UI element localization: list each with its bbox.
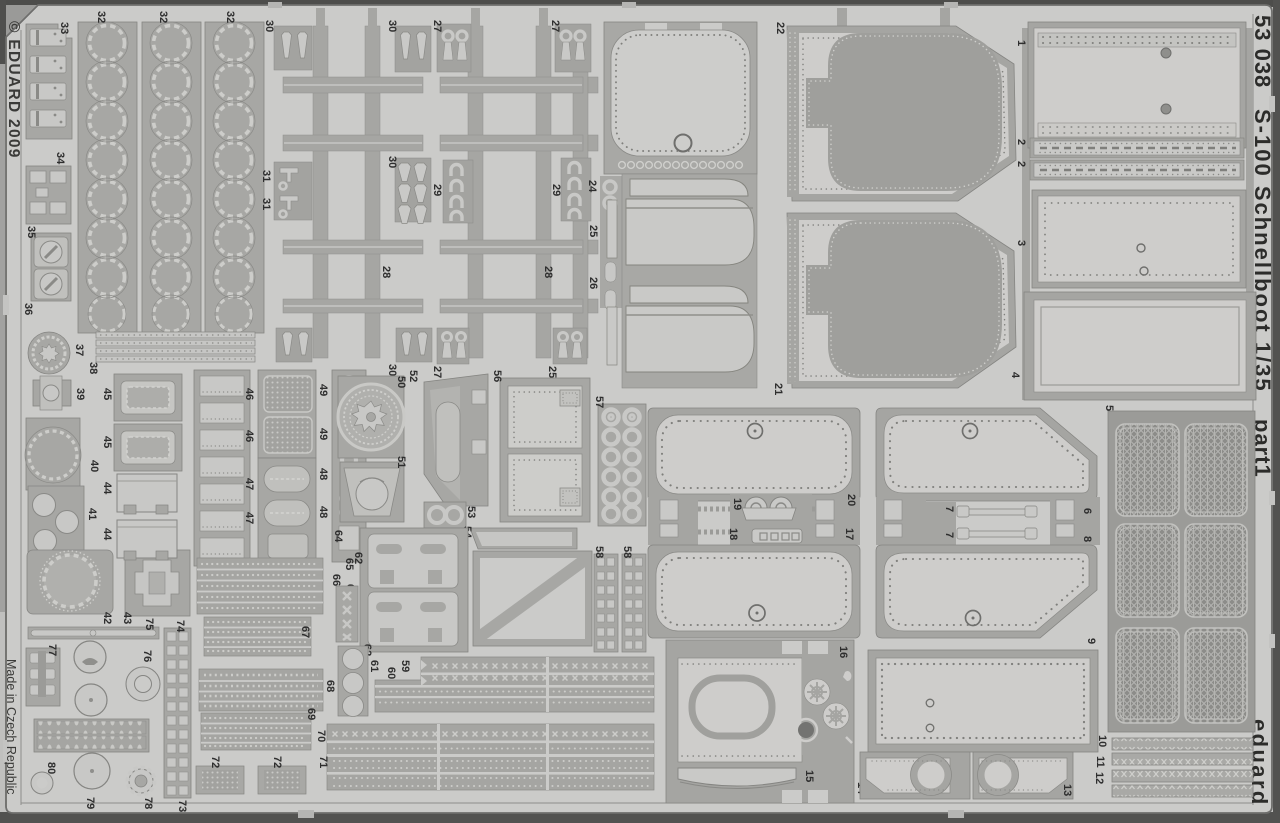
svg-text:53 038: 53 038 xyxy=(1250,15,1275,88)
svg-text:68: 68 xyxy=(324,680,336,692)
svg-text:58: 58 xyxy=(593,546,605,558)
svg-text:27: 27 xyxy=(431,20,443,32)
svg-text:45: 45 xyxy=(101,388,113,400)
svg-text:64: 64 xyxy=(332,530,344,543)
svg-text:2: 2 xyxy=(1015,139,1027,145)
svg-text:8: 8 xyxy=(1081,536,1093,542)
svg-text:7: 7 xyxy=(943,506,955,512)
svg-text:32: 32 xyxy=(157,11,169,23)
svg-text:7: 7 xyxy=(943,532,955,538)
svg-text:57: 57 xyxy=(593,396,605,408)
svg-text:74: 74 xyxy=(174,620,186,633)
svg-text:44: 44 xyxy=(101,528,113,541)
svg-text:6: 6 xyxy=(1081,508,1093,514)
svg-text:21: 21 xyxy=(772,383,784,395)
svg-text:80: 80 xyxy=(45,762,57,774)
svg-text:Made in Czech Republic: Made in Czech Republic xyxy=(4,659,18,795)
svg-text:12: 12 xyxy=(1093,772,1105,784)
svg-text:77: 77 xyxy=(46,644,58,656)
svg-text:66: 66 xyxy=(330,574,342,586)
svg-text:36: 36 xyxy=(22,303,34,315)
svg-text:28: 28 xyxy=(542,266,554,278)
svg-text:47: 47 xyxy=(243,512,255,524)
svg-text:60: 60 xyxy=(385,667,397,679)
svg-text:9: 9 xyxy=(1085,638,1097,644)
svg-text:75: 75 xyxy=(143,618,155,630)
svg-text:32: 32 xyxy=(224,11,236,23)
svg-text:29: 29 xyxy=(550,184,562,196)
svg-text:27: 27 xyxy=(549,20,561,32)
svg-text:1: 1 xyxy=(1015,40,1027,46)
svg-text:2: 2 xyxy=(1015,161,1027,167)
svg-text:30: 30 xyxy=(386,364,398,376)
svg-text:22: 22 xyxy=(774,22,786,34)
svg-text:70: 70 xyxy=(315,730,327,742)
svg-text:41: 41 xyxy=(86,508,98,520)
svg-text:17: 17 xyxy=(843,528,855,540)
svg-text:56: 56 xyxy=(491,370,503,382)
svg-text:16: 16 xyxy=(837,646,849,658)
svg-text:20: 20 xyxy=(845,494,857,506)
svg-text:28: 28 xyxy=(380,266,392,278)
svg-text:58: 58 xyxy=(621,546,633,558)
svg-text:40: 40 xyxy=(88,460,100,472)
svg-text:30: 30 xyxy=(386,156,398,168)
svg-text:34: 34 xyxy=(54,152,66,165)
svg-text:32: 32 xyxy=(95,11,107,23)
svg-text:73: 73 xyxy=(176,800,188,812)
svg-text:31: 31 xyxy=(260,198,272,210)
svg-text:13: 13 xyxy=(1061,784,1073,796)
svg-text:25: 25 xyxy=(587,225,599,237)
svg-text:30: 30 xyxy=(263,20,275,32)
svg-text:48: 48 xyxy=(317,506,329,518)
svg-text:45: 45 xyxy=(101,436,113,448)
svg-text:79: 79 xyxy=(84,797,96,809)
svg-text:46: 46 xyxy=(243,388,255,400)
svg-text:71: 71 xyxy=(317,756,329,768)
svg-text:25: 25 xyxy=(546,366,558,378)
svg-text:19: 19 xyxy=(731,498,743,510)
svg-text:39: 39 xyxy=(74,388,86,400)
svg-text:78: 78 xyxy=(142,797,154,809)
svg-text:24: 24 xyxy=(586,180,598,193)
svg-text:51: 51 xyxy=(395,456,407,468)
svg-text:43: 43 xyxy=(121,612,133,624)
svg-text:18: 18 xyxy=(727,528,739,540)
svg-text:44: 44 xyxy=(101,482,113,495)
svg-text:37: 37 xyxy=(73,344,85,356)
svg-text:52: 52 xyxy=(407,370,419,382)
svg-text:59: 59 xyxy=(399,660,411,672)
svg-text:31: 31 xyxy=(260,170,272,182)
svg-text:76: 76 xyxy=(141,650,153,662)
svg-text:65: 65 xyxy=(343,558,355,570)
svg-text:3: 3 xyxy=(1015,240,1027,246)
svg-text:46: 46 xyxy=(243,430,255,442)
svg-text:69: 69 xyxy=(305,708,317,720)
svg-text:33: 33 xyxy=(58,22,70,34)
svg-text:61: 61 xyxy=(368,660,380,672)
svg-text:49: 49 xyxy=(317,384,329,396)
svg-text:26: 26 xyxy=(587,277,599,289)
svg-text:15: 15 xyxy=(803,770,815,782)
svg-text:© EDUARD 2009: © EDUARD 2009 xyxy=(5,21,22,159)
svg-text:27: 27 xyxy=(431,366,443,378)
svg-text:47: 47 xyxy=(243,478,255,490)
svg-text:53: 53 xyxy=(465,506,477,518)
svg-text:35: 35 xyxy=(25,226,37,238)
svg-text:38: 38 xyxy=(87,362,99,374)
svg-text:4: 4 xyxy=(1009,372,1021,379)
svg-text:72: 72 xyxy=(271,756,283,768)
svg-text:30: 30 xyxy=(386,20,398,32)
svg-text:42: 42 xyxy=(101,612,113,624)
svg-text:72: 72 xyxy=(209,756,221,768)
svg-text:11: 11 xyxy=(1094,756,1106,768)
svg-text:67: 67 xyxy=(299,626,311,638)
svg-text:49: 49 xyxy=(317,428,329,440)
svg-text:5: 5 xyxy=(1103,405,1115,411)
svg-text:48: 48 xyxy=(317,468,329,480)
svg-text:50: 50 xyxy=(395,376,407,388)
svg-text:29: 29 xyxy=(431,184,443,196)
